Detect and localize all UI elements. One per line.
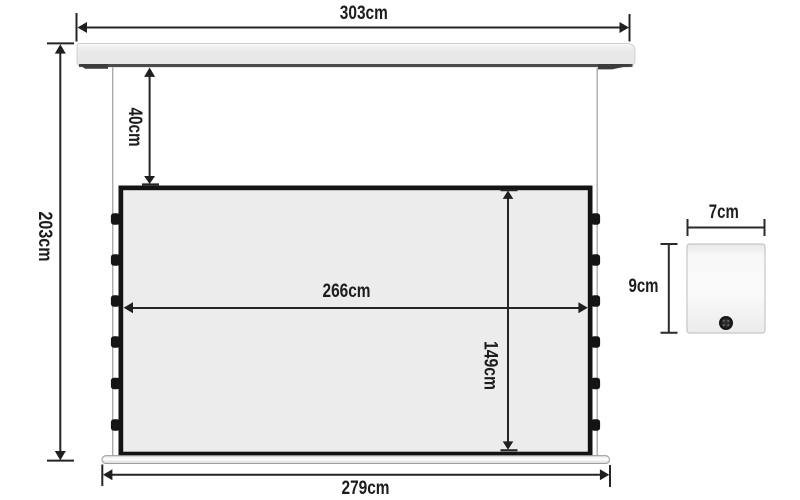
svg-text:303cm: 303cm (340, 2, 388, 24)
svg-text:9cm: 9cm (629, 275, 659, 297)
svg-text:149cm: 149cm (479, 341, 501, 390)
svg-text:40cm: 40cm (124, 108, 146, 147)
svg-text:7cm: 7cm (709, 201, 739, 223)
svg-text:266cm: 266cm (323, 280, 371, 302)
svg-text:279cm: 279cm (342, 477, 390, 499)
svg-text:203cm: 203cm (34, 212, 56, 262)
